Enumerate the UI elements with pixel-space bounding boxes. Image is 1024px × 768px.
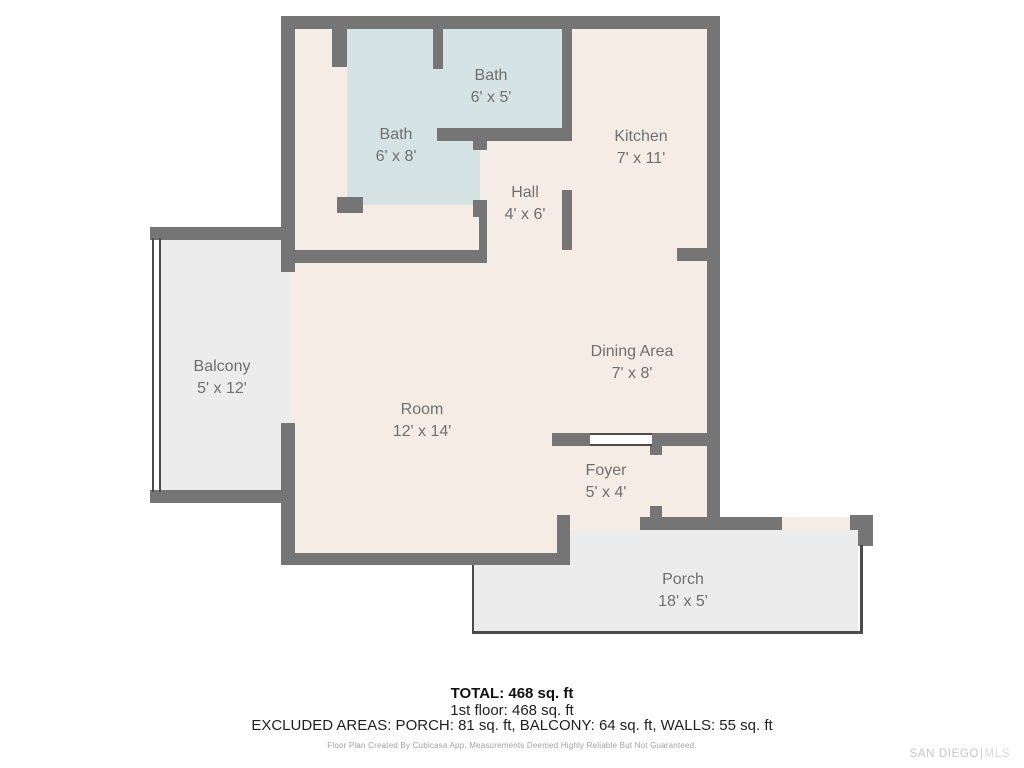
room-label-foyer: Foyer 5' x 4'	[586, 460, 627, 503]
wall-kitchen-left	[562, 29, 572, 141]
room-dims: 6' x 5'	[471, 87, 512, 109]
wall-bottom-step	[557, 515, 570, 565]
room-dims: 7' x 8'	[591, 363, 674, 385]
wall-foyer-stub-top	[650, 446, 662, 455]
balcony-window-line-outer	[152, 238, 154, 492]
room-name: Dining Area	[591, 341, 674, 363]
room-name: Bath	[471, 65, 512, 87]
wall-bath-large-top-stub	[332, 29, 347, 67]
room-dims: 6' x 8'	[376, 146, 417, 168]
wall-balcony-top	[150, 227, 295, 240]
balcony-door-threshold	[289, 272, 295, 423]
wall-mid-right	[677, 248, 720, 261]
room-label-dining: Dining Area 7' x 8'	[591, 341, 674, 384]
wall-foyer-stub-bottom	[650, 506, 662, 517]
wall-top	[281, 16, 720, 29]
summary-excluded: EXCLUDED AREAS: PORCH: 81 sq. ft, BALCON…	[0, 718, 1024, 734]
watermark-suffix: MLS	[985, 748, 1010, 760]
balcony-window-line-inner	[159, 238, 161, 492]
wall-bath-large-door-right	[473, 200, 487, 217]
wall-porch-top	[640, 517, 782, 530]
porch-top-opening	[782, 517, 850, 530]
watermark-agency: SAN DIEGO	[910, 748, 979, 760]
room-dims: 18' x 5'	[658, 591, 708, 613]
wall-hall-thin	[479, 217, 487, 250]
porch-edge-right	[860, 545, 863, 634]
wall-hall-stub	[562, 190, 572, 250]
porch-floor-main	[567, 530, 858, 631]
room-name: Hall	[505, 182, 546, 204]
room-name: Balcony	[194, 356, 251, 378]
room-name: Room	[393, 399, 452, 421]
wall-bath-divider-stub	[433, 29, 443, 69]
room-name: Foyer	[586, 460, 627, 482]
room-label-balcony: Balcony 5' x 12'	[194, 356, 251, 399]
balcony-door-opening	[281, 272, 289, 423]
wall-bottom	[281, 553, 570, 565]
room-label-kitchen: Kitchen 7' x 11'	[614, 126, 667, 169]
mls-watermark: SAN DIEGO|MLS	[910, 748, 1010, 760]
porch-floor-left	[474, 565, 567, 631]
porch-edge-left	[472, 565, 474, 633]
room-label-porch: Porch 18' x 5'	[658, 569, 708, 612]
wall-bath-small-bottom	[437, 128, 572, 141]
room-label-room: Room 12' x 14'	[393, 399, 452, 442]
room-dims: 7' x 11'	[614, 148, 667, 170]
floor-plan: Bath 6' x 5' Bath 6' x 8' Kitchen 7' x 1…	[0, 0, 1024, 768]
wall-bath-large-door-left	[337, 197, 363, 213]
room-label-hall: Hall 4' x 6'	[505, 182, 546, 225]
room-name: Kitchen	[614, 126, 667, 148]
room-label-bath-small: Bath 6' x 5'	[471, 65, 512, 108]
room-label-bath-large: Bath 6' x 8'	[376, 124, 417, 167]
wall-balcony-bottom	[150, 490, 295, 503]
room-name: Bath	[376, 124, 417, 146]
wall-porch-corner-v	[858, 530, 873, 546]
summary-total: TOTAL: 468 sq. ft	[0, 686, 1024, 702]
foyer-window	[590, 433, 652, 446]
wall-mid-left	[281, 250, 487, 263]
room-dims: 4' x 6'	[505, 204, 546, 226]
room-dims: 5' x 4'	[586, 482, 627, 504]
wall-right	[707, 29, 720, 523]
wall-porch-corner-h	[850, 515, 873, 530]
wall-bath-small-door-stub	[473, 141, 487, 150]
room-name: Porch	[658, 569, 708, 591]
plan-disclaimer: Floor Plan Created By Cubicasa App. Meas…	[0, 741, 1024, 750]
room-dims: 5' x 12'	[194, 378, 251, 400]
room-dims: 12' x 14'	[393, 421, 452, 443]
porch-edge-bottom	[472, 631, 863, 634]
